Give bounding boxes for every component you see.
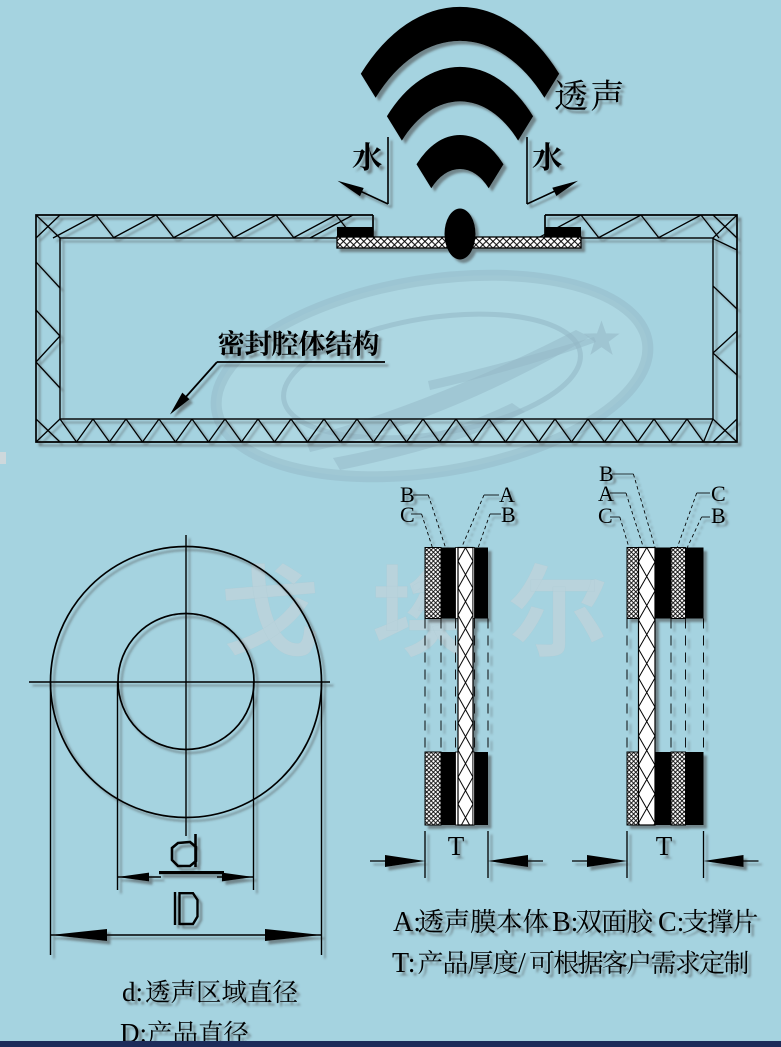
svg-text:d:: d: <box>122 977 143 1007</box>
svg-text:B: B <box>711 503 726 528</box>
svg-text:A:: A: <box>393 907 421 938</box>
svg-text:T:: T: <box>392 948 416 979</box>
svg-text:B:: B: <box>552 907 578 938</box>
svg-text:C:: C: <box>658 907 684 938</box>
svg-text:T: T <box>656 831 673 861</box>
svg-text:B: B <box>501 502 516 527</box>
svg-text:C: C <box>400 502 415 527</box>
svg-text:C: C <box>598 503 613 528</box>
svg-text:/: / <box>518 948 526 979</box>
svg-text:T: T <box>448 831 465 861</box>
